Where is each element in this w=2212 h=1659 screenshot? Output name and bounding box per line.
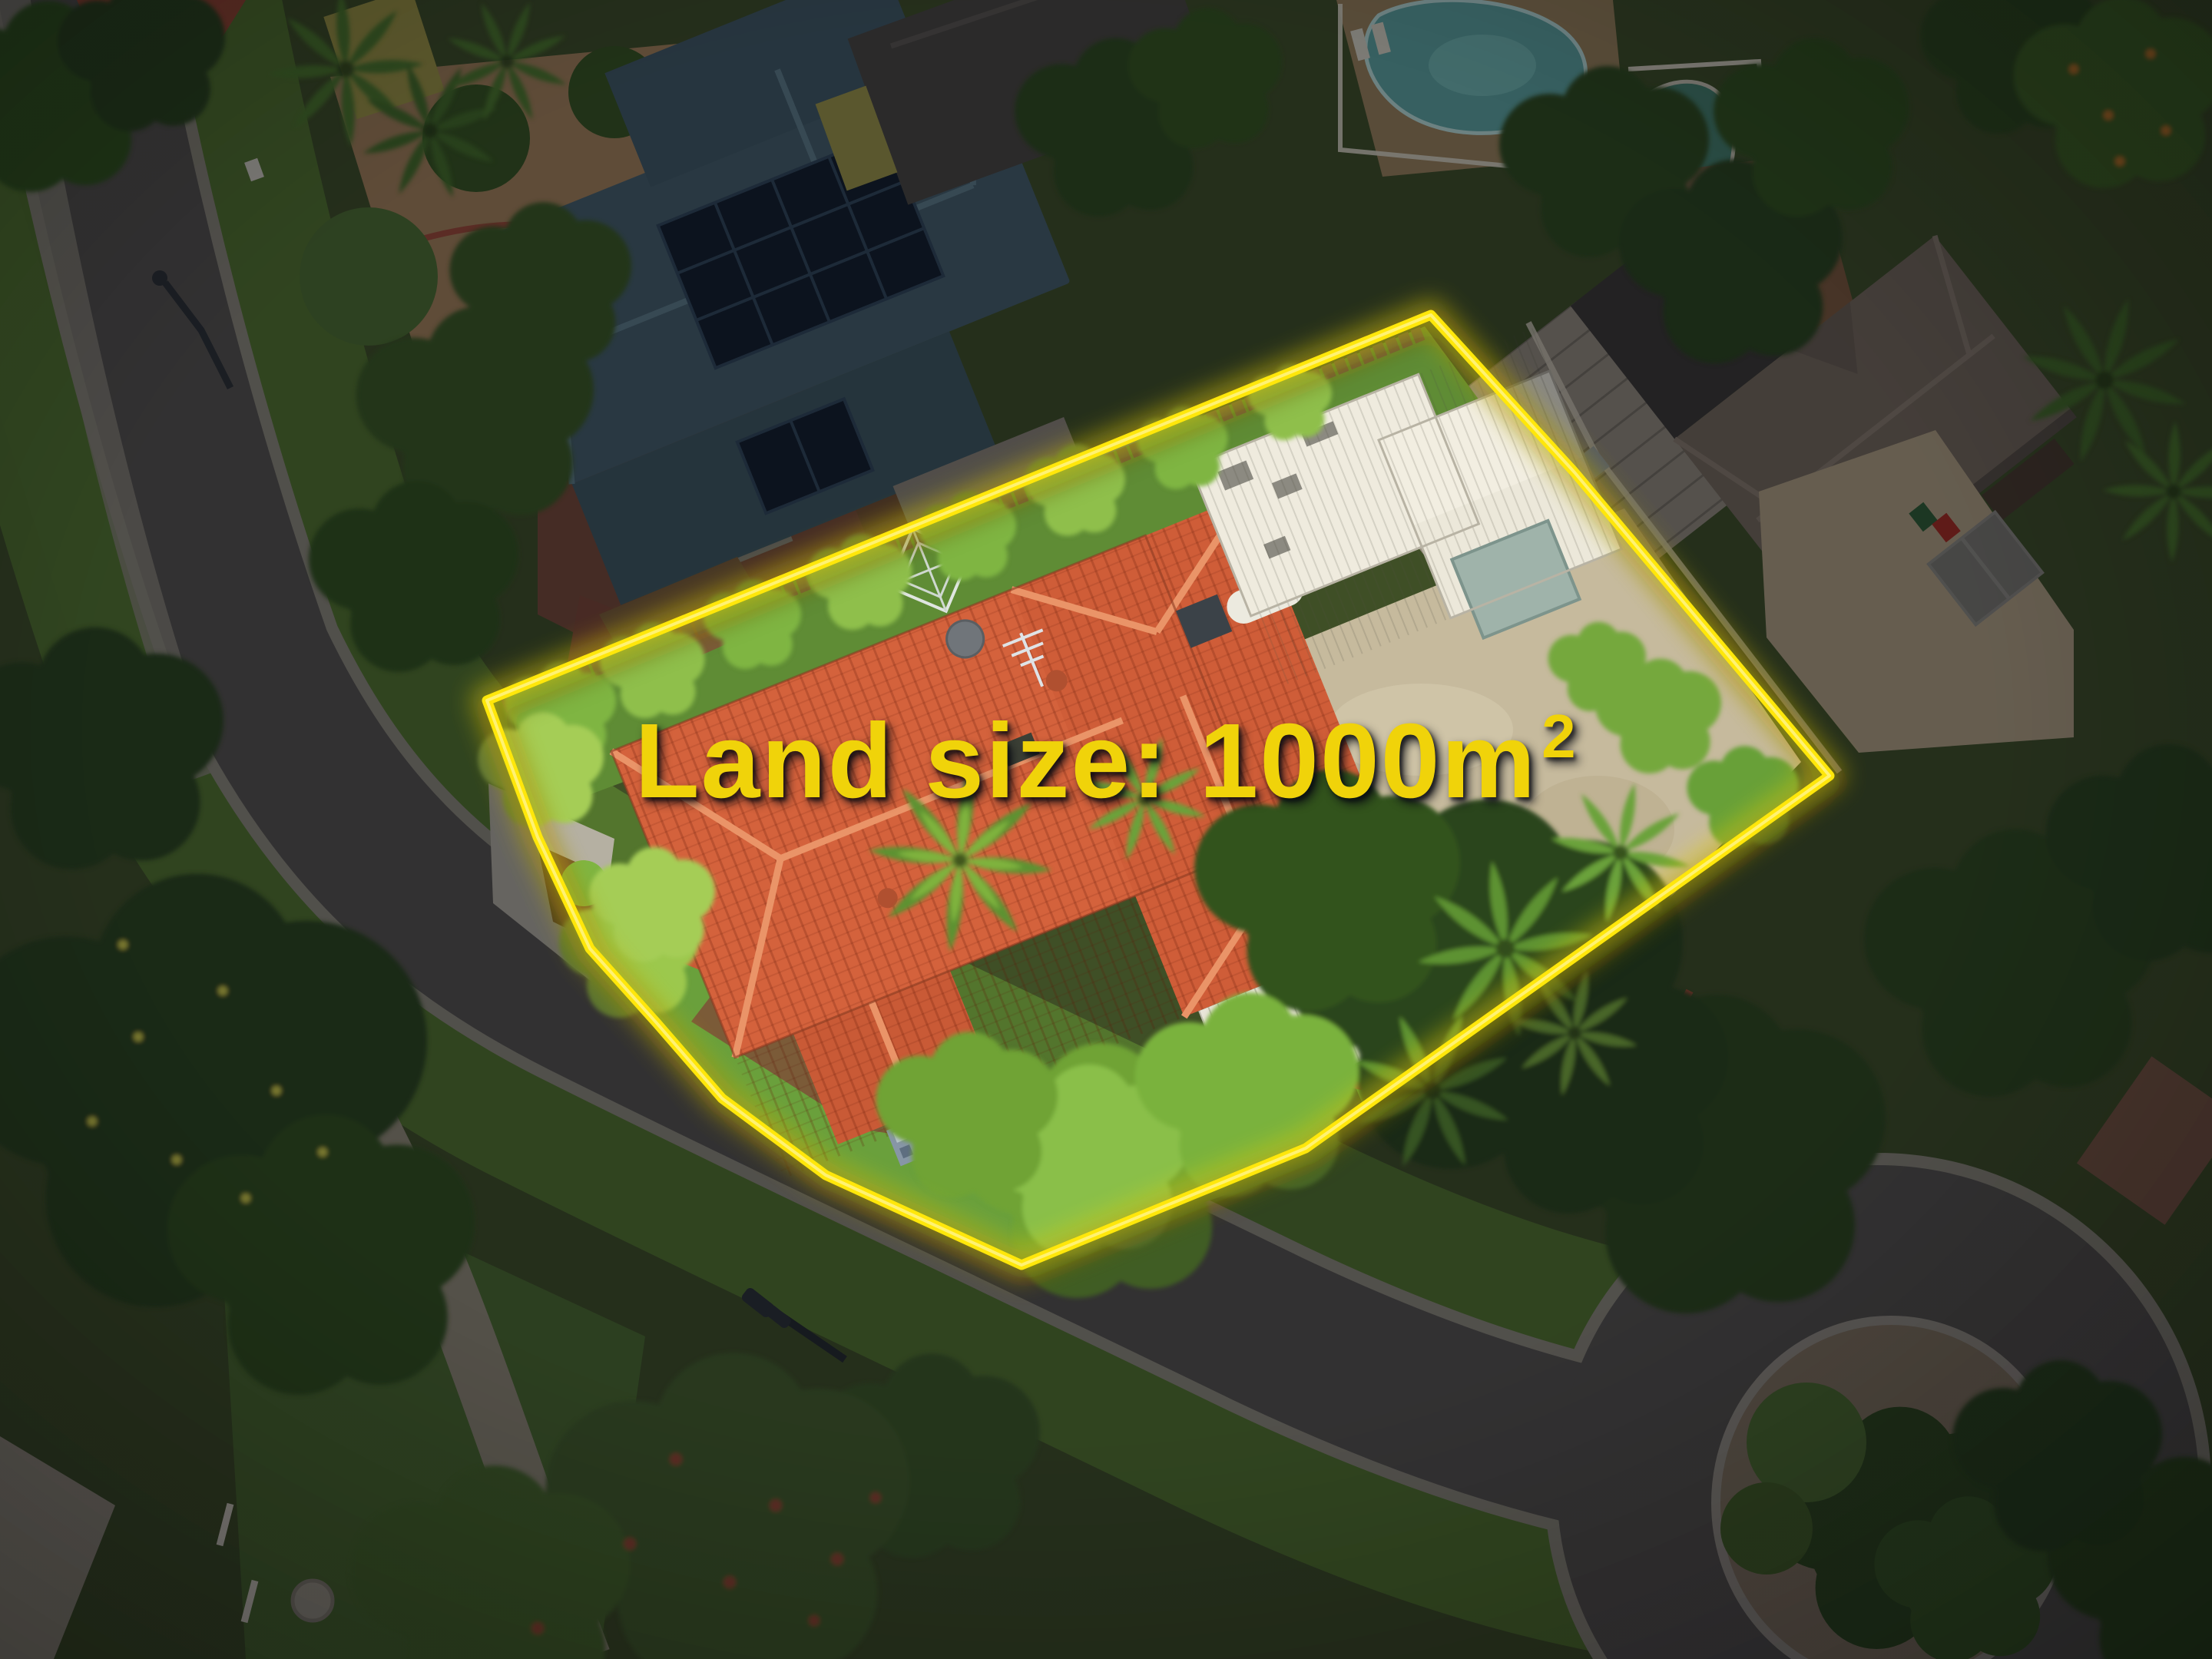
land-size-caption: Land size: 1000m2: [0, 708, 2212, 814]
land-size-exponent: 2: [1541, 702, 1578, 770]
vignette: [0, 0, 2212, 1659]
aerial-photo: [0, 0, 2212, 1659]
land-size-label: Land size: 1000m: [634, 702, 1537, 820]
aerial-property-photo-page: { "overlay": { "land_size_label": "Land …: [0, 0, 2212, 1659]
